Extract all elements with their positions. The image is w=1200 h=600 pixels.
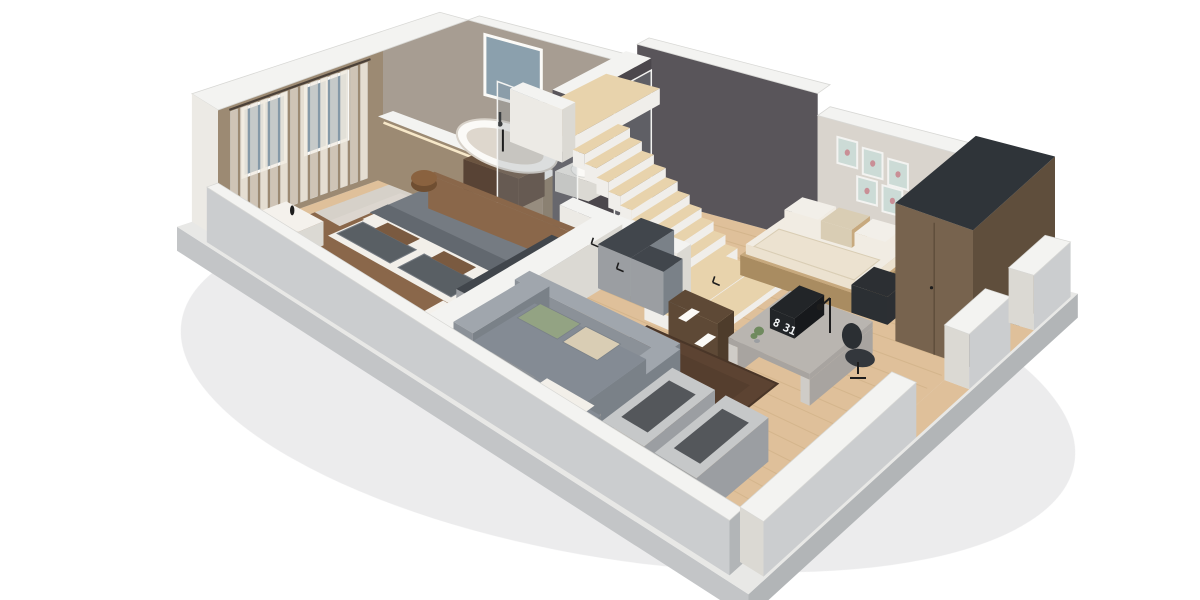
curtain-panel <box>271 95 278 214</box>
curtain-panel <box>251 102 258 221</box>
desk-plant-foliage <box>751 333 758 339</box>
nightstand-figurine <box>290 205 294 215</box>
gallery-frame-art <box>845 149 850 155</box>
desk-panel-right-sw-face <box>801 376 810 406</box>
curtain-panel <box>291 87 298 205</box>
curtain-panel <box>351 66 358 185</box>
desk-plant-pot <box>754 339 760 343</box>
curtain-panel <box>361 62 368 181</box>
curtain-panel <box>331 73 338 192</box>
gallery-frame-art <box>895 171 900 177</box>
curtain-panel <box>321 77 328 196</box>
se-perimeter-wall-sw-face <box>944 325 969 389</box>
gallery-frame-art <box>864 188 869 194</box>
pouf <box>411 170 437 186</box>
desk-lamp-head <box>817 304 824 311</box>
wardrobe-knob <box>930 286 933 289</box>
floor-plan-render-canvas: 8 31 <box>0 0 1200 600</box>
curtain-panel <box>261 98 268 217</box>
curtain-panel <box>281 91 288 210</box>
gallery-frame-art <box>870 160 875 166</box>
gallery-frame-art <box>890 198 895 204</box>
curtain-panel <box>341 69 348 187</box>
apartment-3d-floor-plan: 8 31 <box>0 0 1200 600</box>
curtain-panel <box>311 80 318 199</box>
curtain-panel <box>301 84 308 203</box>
se-perimeter-wall-sw-face <box>1009 268 1034 331</box>
